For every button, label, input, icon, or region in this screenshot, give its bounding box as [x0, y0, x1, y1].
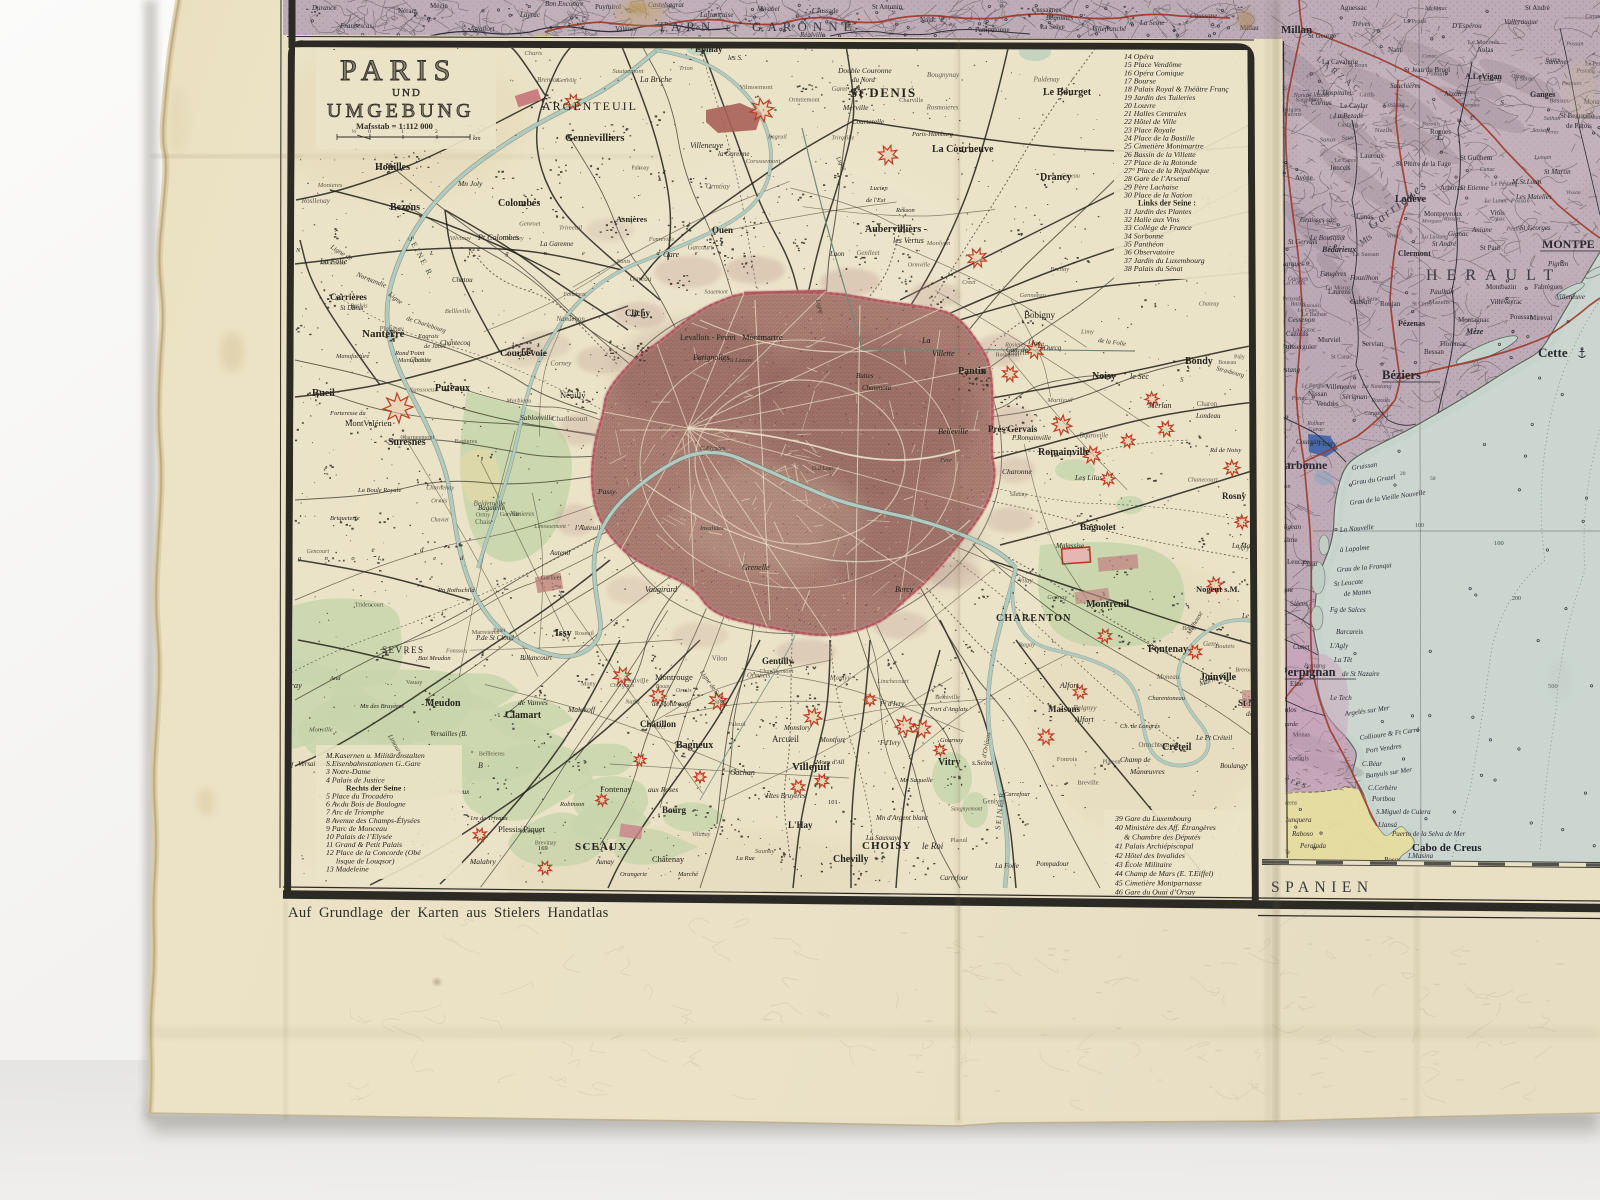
svg-text:Lafrançaise: Lafrançaise: [699, 11, 733, 19]
svg-text:Bellleville: Bellleville: [445, 308, 471, 315]
svg-text:Servian: Servian: [1362, 340, 1384, 348]
svg-text:Saunay: Saunay: [755, 848, 775, 855]
svg-text:Rosny: Rosny: [1222, 491, 1247, 501]
svg-text:Nanssoeuil: Nanssoeuil: [408, 386, 438, 393]
svg-text:TARN: TARN: [658, 19, 716, 34]
svg-text:Arboras: Arboras: [1440, 184, 1463, 192]
svg-text:Mons d'All: Mons d'All: [815, 759, 844, 766]
svg-text:St André: St André: [1432, 240, 1457, 248]
svg-text:Vilmoemont: Vilmoemont: [740, 84, 773, 91]
svg-text:Clichy: Clichy: [625, 308, 651, 318]
svg-text:Bercy: Bercy: [895, 585, 914, 594]
svg-text:Monreay: Monreay: [519, 829, 542, 835]
svg-text:Bazens: Bazens: [1457, 89, 1476, 96]
svg-text:Levallois - Perret: Levallois - Perret: [680, 333, 736, 342]
svg-text:La Selve: La Selve: [1040, 23, 1065, 31]
svg-text:Moneau: Moneau: [1156, 674, 1180, 681]
svg-text:Bagieres: Bagieres: [455, 438, 478, 445]
svg-text:Plareon: Plareon: [1103, 759, 1121, 765]
svg-text:CHARENTON: CHARENTON: [996, 613, 1072, 624]
svg-text:Paris-Hamburg: Paris-Hamburg: [911, 131, 954, 138]
svg-text:Malakoff: Malakoff: [567, 705, 596, 714]
svg-text:La Vinac: La Vinac: [1424, 5, 1448, 12]
svg-text:St Georges: St Georges: [1520, 224, 1551, 232]
svg-text:Gignac: Gignac: [1448, 230, 1470, 238]
svg-text:Ouen: Ouen: [712, 225, 733, 235]
svg-text:Meudon: Meudon: [425, 698, 461, 709]
svg-text:Nanis: Nanis: [624, 698, 640, 705]
svg-text:Bellleieres: Bellleieres: [479, 752, 505, 758]
svg-text:Sablonville: Sablonville: [520, 413, 554, 422]
svg-text:Vissan: Vissan: [1566, 190, 1581, 196]
svg-text:Mn Joly: Mn Joly: [457, 179, 483, 188]
svg-text:St Etienne: St Etienne: [1460, 184, 1489, 192]
svg-text:Breville: Breville: [1077, 779, 1099, 786]
svg-text:St André: St André: [1525, 4, 1550, 12]
svg-text:Foncheet: Foncheet: [562, 292, 586, 298]
svg-text:Issy: Issy: [555, 628, 572, 639]
svg-text:Elne: Elne: [1290, 680, 1303, 688]
svg-text:de Montrouge: de Montrouge: [652, 700, 691, 708]
svg-text:Mn Saquelle: Mn Saquelle: [899, 777, 933, 784]
svg-text:Cette: Cette: [1538, 345, 1568, 360]
svg-text:Pezils: Pezils: [1506, 227, 1522, 233]
svg-text:Rosllenay: Rosllenay: [301, 197, 331, 205]
svg-text:Malassise: Malassise: [1055, 542, 1084, 550]
svg-text:le Sec: le Sec: [1130, 372, 1149, 381]
svg-text:aux Roses: aux Roses: [648, 785, 678, 794]
svg-text:Roujan: Roujan: [1380, 300, 1401, 308]
svg-text:Forteresse du: Forteresse du: [329, 410, 366, 417]
svg-text:Engrais: Engrais: [417, 333, 439, 340]
svg-text:SPANIEN: SPANIEN: [1271, 879, 1374, 896]
svg-text:½: ½: [352, 128, 356, 135]
svg-text:Roseuil: Roseuil: [575, 630, 594, 637]
svg-text:Villette: Villette: [932, 349, 955, 358]
svg-text:Bédarieux: Bédarieux: [1321, 245, 1356, 254]
svg-text:Trion: Trion: [679, 65, 693, 72]
svg-text:Romainville: Romainville: [1038, 447, 1090, 458]
svg-text:Alfort: Alfort: [1074, 715, 1094, 724]
svg-text:Le Porgues: Le Porgues: [1301, 384, 1329, 390]
svg-text:Rosieres: Rosieres: [1004, 342, 1027, 349]
svg-text:Orangerie: Orangerie: [620, 871, 647, 878]
svg-text:Salhan: Salhan: [1544, 116, 1561, 122]
svg-text:Roslyis: Roslyis: [350, 303, 369, 309]
svg-text:Vauay: Vauay: [406, 679, 423, 686]
svg-text:MONTPE: MONTPE: [1542, 237, 1595, 251]
svg-text:Rozouls: Rozouls: [1371, 398, 1391, 404]
svg-text:Bobigny: Bobigny: [1024, 310, 1056, 320]
svg-text:Auf Grundlage der Karten aus S: Auf Grundlage der Karten aus Stielers Ha…: [288, 905, 609, 921]
svg-text:Morgues: Morgues: [1421, 219, 1443, 225]
svg-text:Marbieau: Marbieau: [505, 397, 531, 404]
svg-text:Fonrois: Fonrois: [1057, 756, 1078, 763]
svg-text:D'Espérou: D'Espérou: [1451, 22, 1482, 30]
svg-text:Caussade: Caussade: [812, 7, 838, 15]
svg-text:La Boule Royale: La Boule Royale: [357, 487, 401, 494]
svg-text:Peralada: Peralada: [1299, 842, 1327, 850]
svg-text:Béziers: Béziers: [1382, 368, 1421, 382]
svg-text:Aniane: Aniane: [1471, 226, 1492, 234]
svg-text:100: 100: [1415, 523, 1424, 529]
svg-text:La Seine: La Seine: [1139, 19, 1164, 27]
svg-text:Rosmoieres: Rosmoieres: [926, 104, 959, 111]
svg-text:Possan: Possan: [1565, 41, 1583, 47]
svg-text:Ormtiemont: Ormtiemont: [789, 97, 820, 104]
svg-text:Valence: Valence: [615, 25, 637, 33]
svg-text:Garet: Garet: [832, 86, 849, 93]
svg-text:Londeau: Londeau: [1195, 412, 1221, 420]
svg-text:PARIS: PARIS: [340, 54, 457, 87]
svg-text:Virac: Virac: [1410, 195, 1424, 202]
svg-text:HERAULT: HERAULT: [1426, 267, 1562, 284]
svg-text:S.Miguel de Culera: S.Miguel de Culera: [1376, 808, 1431, 816]
svg-text:Avène: Avène: [1295, 174, 1313, 182]
svg-text:Coursan: Coursan: [1296, 438, 1321, 446]
svg-text:Vires: Vires: [1387, 233, 1399, 239]
svg-text:Monslory: Monslory: [783, 724, 812, 732]
svg-text:Carrefour: Carrefour: [940, 874, 968, 882]
svg-text:Belleville: Belleville: [938, 427, 969, 436]
svg-text:Mirabel: Mirabel: [756, 5, 780, 13]
svg-text:C.Béar: C.Béar: [1362, 760, 1382, 768]
svg-text:Paleuil: Paleuil: [728, 721, 745, 728]
svg-text:Chatou: Chatou: [452, 276, 473, 284]
svg-text:Sargues: Sargues: [1296, 96, 1316, 103]
svg-text:Pompadour: Pompadour: [1035, 860, 1069, 868]
svg-text:Tridencourt: Tridencourt: [355, 602, 384, 608]
svg-text:Bondy: Bondy: [1185, 356, 1213, 367]
svg-text:Grenelle: Grenelle: [742, 563, 770, 572]
svg-text:Mézin: Mézin: [430, 2, 448, 10]
svg-text:41 Palais Archiépiscopal: 41 Palais Archiépiscopal: [1115, 842, 1193, 851]
svg-text:Trèves: Trèves: [1352, 20, 1371, 28]
svg-text:G.d.Louv.: G.d.Louv.: [812, 466, 835, 472]
svg-text:La Briche: La Briche: [639, 75, 672, 84]
svg-text:Lauroux: Lauroux: [1360, 152, 1384, 160]
svg-text:Htes Bruyères: Htes Bruyères: [765, 792, 806, 800]
svg-text:St Antonin: St Antonin: [872, 3, 903, 11]
svg-text:Chaviet: Chaviet: [431, 518, 449, 524]
svg-text:Sanas: Sanas: [1320, 136, 1336, 143]
svg-text:Pt d'Ivry: Pt d'Ivry: [879, 700, 905, 708]
svg-text:Fouzilhon: Fouzilhon: [1349, 274, 1379, 282]
svg-text:Ceres: Ceres: [1511, 74, 1526, 80]
svg-text:Valleraugue: Valleraugue: [1504, 18, 1538, 26]
svg-text:Nogent s.M.: Nogent s.M.: [1196, 584, 1240, 594]
svg-text:Fonssois: Fonssois: [445, 649, 468, 655]
svg-text:Bas Meudon: Bas Meudon: [418, 655, 451, 662]
svg-text:C.Cerbère: C.Cerbère: [1368, 784, 1397, 792]
svg-text:38 Palais du Sénat: 38 Palais du Sénat: [1123, 264, 1184, 273]
svg-text:Vendres: Vendres: [1316, 400, 1339, 408]
svg-text:Mn des Bruyères: Mn des Bruyères: [359, 703, 404, 710]
svg-text:de Putois: de Putois: [1566, 122, 1592, 130]
svg-text:2: 2: [435, 129, 438, 135]
svg-text:Aulas: Aulas: [1477, 46, 1494, 54]
svg-text:La Nastang: La Nastang: [1361, 383, 1392, 390]
svg-text:Bagnolet: Bagnolet: [1080, 523, 1117, 533]
svg-text:P.Romainville: P.Romainville: [1011, 434, 1051, 442]
svg-text:Llansá: Llansá: [1377, 821, 1398, 829]
svg-text:Buttes: Buttes: [856, 372, 874, 380]
svg-text:Fort d'Anglais: Fort d'Anglais: [929, 706, 968, 713]
svg-text:Nissan: Nissan: [1308, 390, 1328, 398]
svg-text:Carrefour: Carrefour: [1004, 791, 1031, 798]
svg-text:s: s: [1500, 96, 1504, 108]
svg-text:SEVRES: SEVRES: [382, 645, 425, 655]
svg-text:Montagnac: Montagnac: [1458, 316, 1490, 324]
svg-text:Robinson: Robinson: [559, 801, 585, 808]
svg-text:Very: Very: [1237, 544, 1250, 552]
svg-text:Genlleet: Genlleet: [857, 250, 881, 257]
svg-text:Ch. de Longrés: Ch. de Longrés: [1120, 723, 1160, 730]
svg-text:Plabinay: Plabinay: [378, 326, 405, 333]
svg-text:Montbazin: Montbazin: [1486, 283, 1517, 291]
svg-text:Possan: Possan: [1510, 198, 1531, 205]
svg-text:Charentoneau: Charentoneau: [1148, 695, 1186, 702]
svg-text:Le Pestang: Le Pestang: [1491, 182, 1518, 188]
svg-text:Bouroville: Bouroville: [1079, 432, 1108, 439]
svg-text:39 Gare du Luxembourg: 39 Gare du Luxembourg: [1114, 814, 1191, 823]
svg-text:Charon: Charon: [1197, 401, 1218, 408]
svg-text:L'Agly: L'Agly: [1329, 642, 1349, 650]
svg-text:Monlyy: Monlyy: [829, 675, 852, 682]
svg-text:Aunay: Aunay: [595, 858, 615, 866]
svg-text:Les Lilas: Les Lilas: [1074, 473, 1102, 482]
svg-text:Manufacture: Manufacture: [335, 353, 369, 360]
svg-text:Chanecourt: Chanecourt: [1188, 477, 1218, 484]
svg-text:Courterelle: Courterelle: [852, 118, 884, 126]
svg-text:Le Cares: Le Cares: [1314, 221, 1338, 227]
svg-text:Neuilly: Neuilly: [560, 390, 586, 400]
svg-text:Gareau: Gareau: [630, 275, 652, 283]
svg-text:La Saussaye: La Saussaye: [865, 834, 901, 842]
svg-text:Bouay: Bouay: [656, 684, 671, 690]
svg-text:Durance: Durance: [311, 4, 337, 12]
svg-text:Sauemont: Sauemont: [704, 289, 728, 295]
svg-text:Gazils: Gazils: [1360, 92, 1376, 98]
svg-text:Mony: Mony: [581, 681, 597, 687]
svg-text:Villeneuve: Villeneuve: [690, 141, 724, 150]
svg-text:la Garenne: la Garenne: [718, 150, 749, 158]
svg-text:Cassagnes: Cassagnes: [1032, 6, 1061, 14]
svg-text:St Roux: St Roux: [1348, 63, 1368, 69]
svg-text:Sazouls: Sazouls: [1288, 755, 1309, 762]
svg-text:Fontenay: Fontenay: [600, 784, 632, 794]
svg-text:Garac: Garac: [1308, 427, 1324, 433]
svg-text:Fitou: Fitou: [1301, 560, 1318, 568]
svg-text:Billancourt: Billancourt: [520, 654, 553, 662]
svg-text:SCEAUX: SCEAUX: [575, 841, 627, 853]
svg-text:Layrac: Layrac: [519, 11, 541, 19]
svg-text:Le Lunac: Le Lunac: [1484, 198, 1508, 204]
svg-text:Veret: Veret: [653, 725, 666, 731]
svg-text:0: 0: [368, 129, 371, 135]
svg-text:Laon: Laon: [829, 250, 845, 258]
svg-text:St Canac: St Canac: [1331, 355, 1352, 361]
svg-text:Paly: Paly: [1234, 355, 1246, 361]
svg-text:s.Seine: s.Seine: [972, 758, 994, 767]
svg-text:Sauteemont: Sauteemont: [612, 68, 643, 75]
svg-text:C.Elysées: C.Elysées: [700, 445, 726, 452]
svg-text:Canac: Canac: [1585, 13, 1600, 20]
svg-text:Gentilly: Gentilly: [762, 656, 793, 666]
svg-text:MontValérien: MontValérien: [345, 418, 392, 428]
svg-text:1: 1: [401, 129, 404, 135]
svg-text:Bégonhès: Bégonhès: [1046, 14, 1073, 22]
svg-text:UMGEBUNG: UMGEBUNG: [327, 100, 475, 122]
svg-text:Merlan: Merlan: [1147, 401, 1172, 410]
svg-text:km: km: [473, 135, 481, 142]
svg-text:La Carac: La Carac: [1293, 326, 1316, 333]
svg-text:Bon Encontre: Bon Encontre: [545, 0, 583, 8]
svg-text:43 École Militaire: 43 École Militaire: [1115, 859, 1172, 869]
svg-text:Palet: Palet: [493, 628, 505, 634]
svg-text:Ormis: Ormis: [431, 498, 448, 505]
svg-text:Bagay: Bagay: [1019, 642, 1035, 649]
svg-text:G.St Lazare: G.St Lazare: [722, 357, 753, 364]
svg-text:La Pezils: La Pezils: [1404, 18, 1427, 25]
svg-text:Castang: Castang: [1384, 102, 1405, 109]
svg-text:Barcareis: Barcareis: [1336, 628, 1363, 636]
svg-text:Peres: Peres: [1545, 130, 1559, 136]
svg-text:Marché: Marché: [677, 871, 699, 878]
svg-text:Rueil: Rueil: [312, 388, 335, 399]
svg-text:Plativille: Plativille: [624, 678, 648, 685]
svg-text:200: 200: [1512, 596, 1521, 602]
svg-text:La Folie: La Folie: [994, 862, 1019, 870]
svg-text:Le Caylar: Le Caylar: [1340, 102, 1368, 110]
svg-text:Creet: Creet: [962, 279, 976, 286]
svg-text:Le Cares: Le Cares: [1335, 158, 1357, 164]
svg-text:Père: Père: [939, 457, 952, 464]
svg-text:Charis: Charis: [524, 50, 542, 57]
svg-text:Chaumont: Chaumont: [862, 384, 892, 392]
svg-text:Sares: Sares: [1546, 57, 1561, 64]
svg-text:Bessan: Bessan: [1424, 348, 1444, 356]
svg-text:Versailles (B.: Versailles (B.: [430, 730, 468, 738]
svg-text:Bazouls: Bazouls: [1422, 121, 1441, 127]
svg-text:Colombes: Colombes: [498, 198, 540, 209]
svg-text:La Courneuve: La Courneuve: [932, 144, 994, 155]
svg-text:Palroay: Palroay: [631, 166, 649, 172]
svg-text:La Têt: La Têt: [1333, 656, 1353, 664]
svg-text:Lunas: Lunas: [1356, 213, 1373, 221]
svg-text:Nazils: Nazils: [1375, 127, 1392, 134]
svg-text:Lucien: Lucien: [869, 185, 888, 192]
svg-text:Bezons: Bezons: [390, 202, 420, 213]
svg-text:Charnenay: Charnenay: [426, 485, 454, 492]
svg-text:Noisy: Noisy: [1092, 371, 1116, 382]
svg-text:Fg de Salces: Fg de Salces: [1329, 606, 1366, 614]
svg-text:Caussane: Caussane: [1190, 12, 1217, 20]
svg-text:Nandenon: Nandenon: [556, 316, 586, 323]
svg-text:Monlleeau: Monlleeau: [319, 261, 345, 267]
svg-text:Fleury: Fleury: [1317, 440, 1338, 448]
svg-text:Chachey: Chachey: [502, 236, 524, 242]
svg-text:Brenay: Brenay: [1050, 266, 1069, 273]
svg-text:Joncels: Joncels: [1330, 164, 1351, 172]
svg-text:Triroville: Triroville: [832, 136, 855, 142]
svg-text:Pn Rothschild: Pn Rothschild: [437, 587, 475, 594]
svg-text:Ormis: Ormis: [676, 687, 692, 694]
svg-text:Autenil: Autenil: [549, 549, 570, 557]
svg-text:S: S: [1180, 376, 1184, 384]
svg-text:Houilles: Houilles: [375, 162, 410, 173]
svg-text:Briqueterie: Briqueterie: [330, 515, 360, 522]
svg-text:La Rue: La Rue: [735, 855, 755, 862]
svg-text:Limchecourt: Limchecourt: [876, 678, 909, 685]
svg-text:Portbou: Portbou: [1371, 795, 1395, 803]
svg-text:Viltinay: Viltinay: [692, 832, 711, 838]
svg-text:Canac: Canac: [1422, 53, 1437, 59]
svg-text:Mèze: Mèze: [1465, 327, 1484, 336]
svg-text:Canac: Canac: [1480, 167, 1496, 173]
svg-text:Pézenas: Pézenas: [1398, 319, 1425, 328]
svg-text:Pozouls: Pozouls: [1425, 71, 1447, 78]
svg-text:Pignan: Pignan: [1547, 260, 1569, 268]
svg-text:St Martin: St Martin: [1544, 168, 1571, 176]
svg-text:Villeneuve: Villeneuve: [1556, 293, 1585, 301]
svg-text:les Vertus: les Vertus: [893, 236, 924, 245]
svg-text:Salces: Salces: [1290, 600, 1308, 608]
svg-text:Raboso: Raboso: [1291, 830, 1314, 838]
svg-text:Penac: Penac: [1291, 395, 1308, 402]
svg-text:Le Sassan: Le Sassan: [1353, 251, 1380, 258]
svg-text:l'Auteuil: l'Auteuil: [575, 523, 600, 532]
svg-text:Joinville: Joinville: [1200, 672, 1237, 683]
svg-text:Arcueil: Arcueil: [772, 734, 799, 744]
svg-text:Charville: Charville: [899, 97, 923, 104]
svg-text:La Morac: La Morac: [1324, 285, 1351, 292]
svg-text:Nassan: Nassan: [1441, 216, 1460, 223]
svg-text:Montmartre: Montmartre: [742, 332, 783, 342]
svg-text:Ormcheemont: Ormcheemont: [1139, 741, 1179, 749]
svg-text:Carrières: Carrières: [330, 292, 367, 302]
svg-text:Rd de Noisy: Rd de Noisy: [1209, 447, 1242, 454]
svg-text:Cachan: Cachan: [730, 768, 755, 777]
svg-text:La Lustang: La Lustang: [1421, 235, 1448, 241]
svg-text:L'Hay: L'Hay: [788, 820, 813, 830]
svg-text:Gennay: Gennay: [1047, 594, 1067, 601]
svg-text:And: And: [329, 675, 341, 682]
svg-text:Pampelonne: Pampelonne: [975, 26, 1010, 34]
svg-text:Farac: Farac: [1282, 343, 1295, 349]
svg-text:Ormtiay: Ormtiay: [706, 183, 731, 191]
svg-text:Garlleet: Garlleet: [541, 575, 562, 582]
svg-text:Sérignan: Sérignan: [1342, 393, 1368, 401]
svg-text:e: e: [1470, 111, 1475, 123]
svg-text:Gargues: Gargues: [1288, 277, 1309, 283]
svg-text:Rékson: Rékson: [895, 207, 915, 214]
svg-text:de l'Est: de l'Est: [866, 197, 885, 204]
svg-text:La Virac: La Virac: [1328, 114, 1350, 120]
svg-text:Sigean: Sigean: [1282, 523, 1302, 531]
svg-text:Le Bourget: Le Bourget: [1043, 87, 1092, 98]
svg-text:Le Tech: Le Tech: [1329, 694, 1352, 702]
svg-text:50: 50: [1430, 476, 1436, 482]
svg-text:Manœuvres: Manœuvres: [1129, 767, 1165, 776]
svg-text:Charllecourt: Charllecourt: [552, 415, 588, 423]
svg-text:de Vanves: de Vanves: [518, 698, 548, 707]
svg-text:Vilvinay: Vilvinay: [450, 235, 471, 242]
svg-text:Paulhan: Paulhan: [1429, 288, 1454, 296]
svg-text:Villefranché: Villefranché: [1092, 25, 1127, 33]
svg-text:13 Madeleine: 13 Madeleine: [326, 864, 369, 873]
svg-text:Genlyet: Genlyet: [983, 798, 1005, 805]
